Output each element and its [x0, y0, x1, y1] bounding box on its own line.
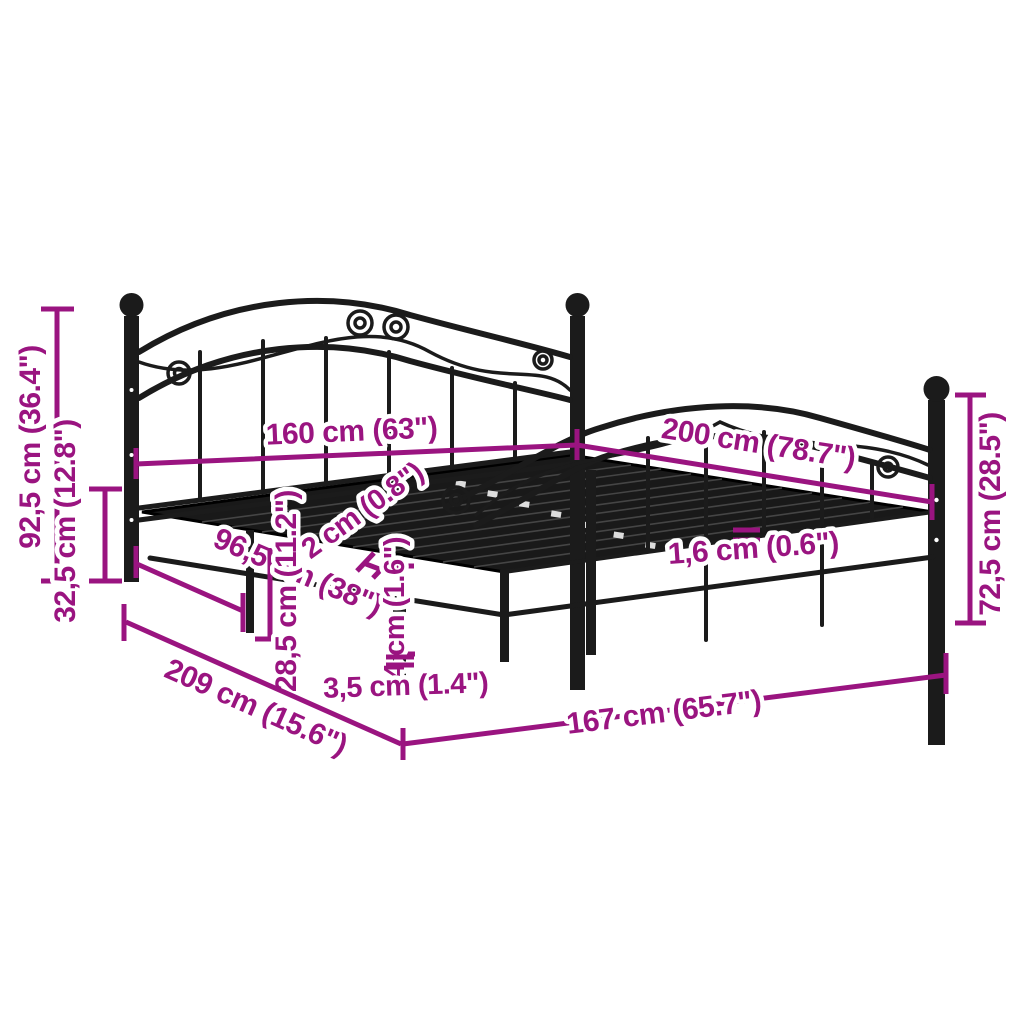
- dim-label-3-5: 3,5 cm (1.4"): [323, 667, 489, 705]
- dim-label-72-5: 72,5 cm (28.5"): [974, 412, 1007, 616]
- footboard-finial: [924, 376, 950, 402]
- dim-label-92-5: 92,5 cm (36.4"): [14, 345, 47, 549]
- bed-frame: [120, 293, 950, 745]
- leg: [500, 570, 509, 662]
- dim-label-28-5: 28,5 cm (11.2"): [270, 490, 303, 692]
- bed-frame-dimension-diagram: 92,5 cm (36.4") 32,5 cm (12.8") 96,5 cm …: [0, 0, 1024, 1024]
- dim-label-160: 160 cm (63"): [265, 411, 438, 451]
- dim-label-167: 167 cm (65.7"): [565, 684, 763, 741]
- headboard-left-finial: [120, 293, 144, 317]
- dim-label-32-5: 32,5 cm (12.8"): [49, 419, 82, 623]
- dimension-under-bed-left: 32,5 cm (12.8"): [49, 419, 122, 623]
- dimension-leg-width: 3,5 cm (1.4"): [323, 657, 489, 705]
- diagram-canvas: 92,5 cm (36.4") 32,5 cm (12.8") 96,5 cm …: [0, 0, 1024, 1024]
- dimension-footboard-height: 72,5 cm (28.5"): [955, 395, 1007, 623]
- leg: [586, 470, 596, 655]
- headboard-right-finial: [566, 293, 590, 317]
- headboard-right-post: [570, 316, 585, 690]
